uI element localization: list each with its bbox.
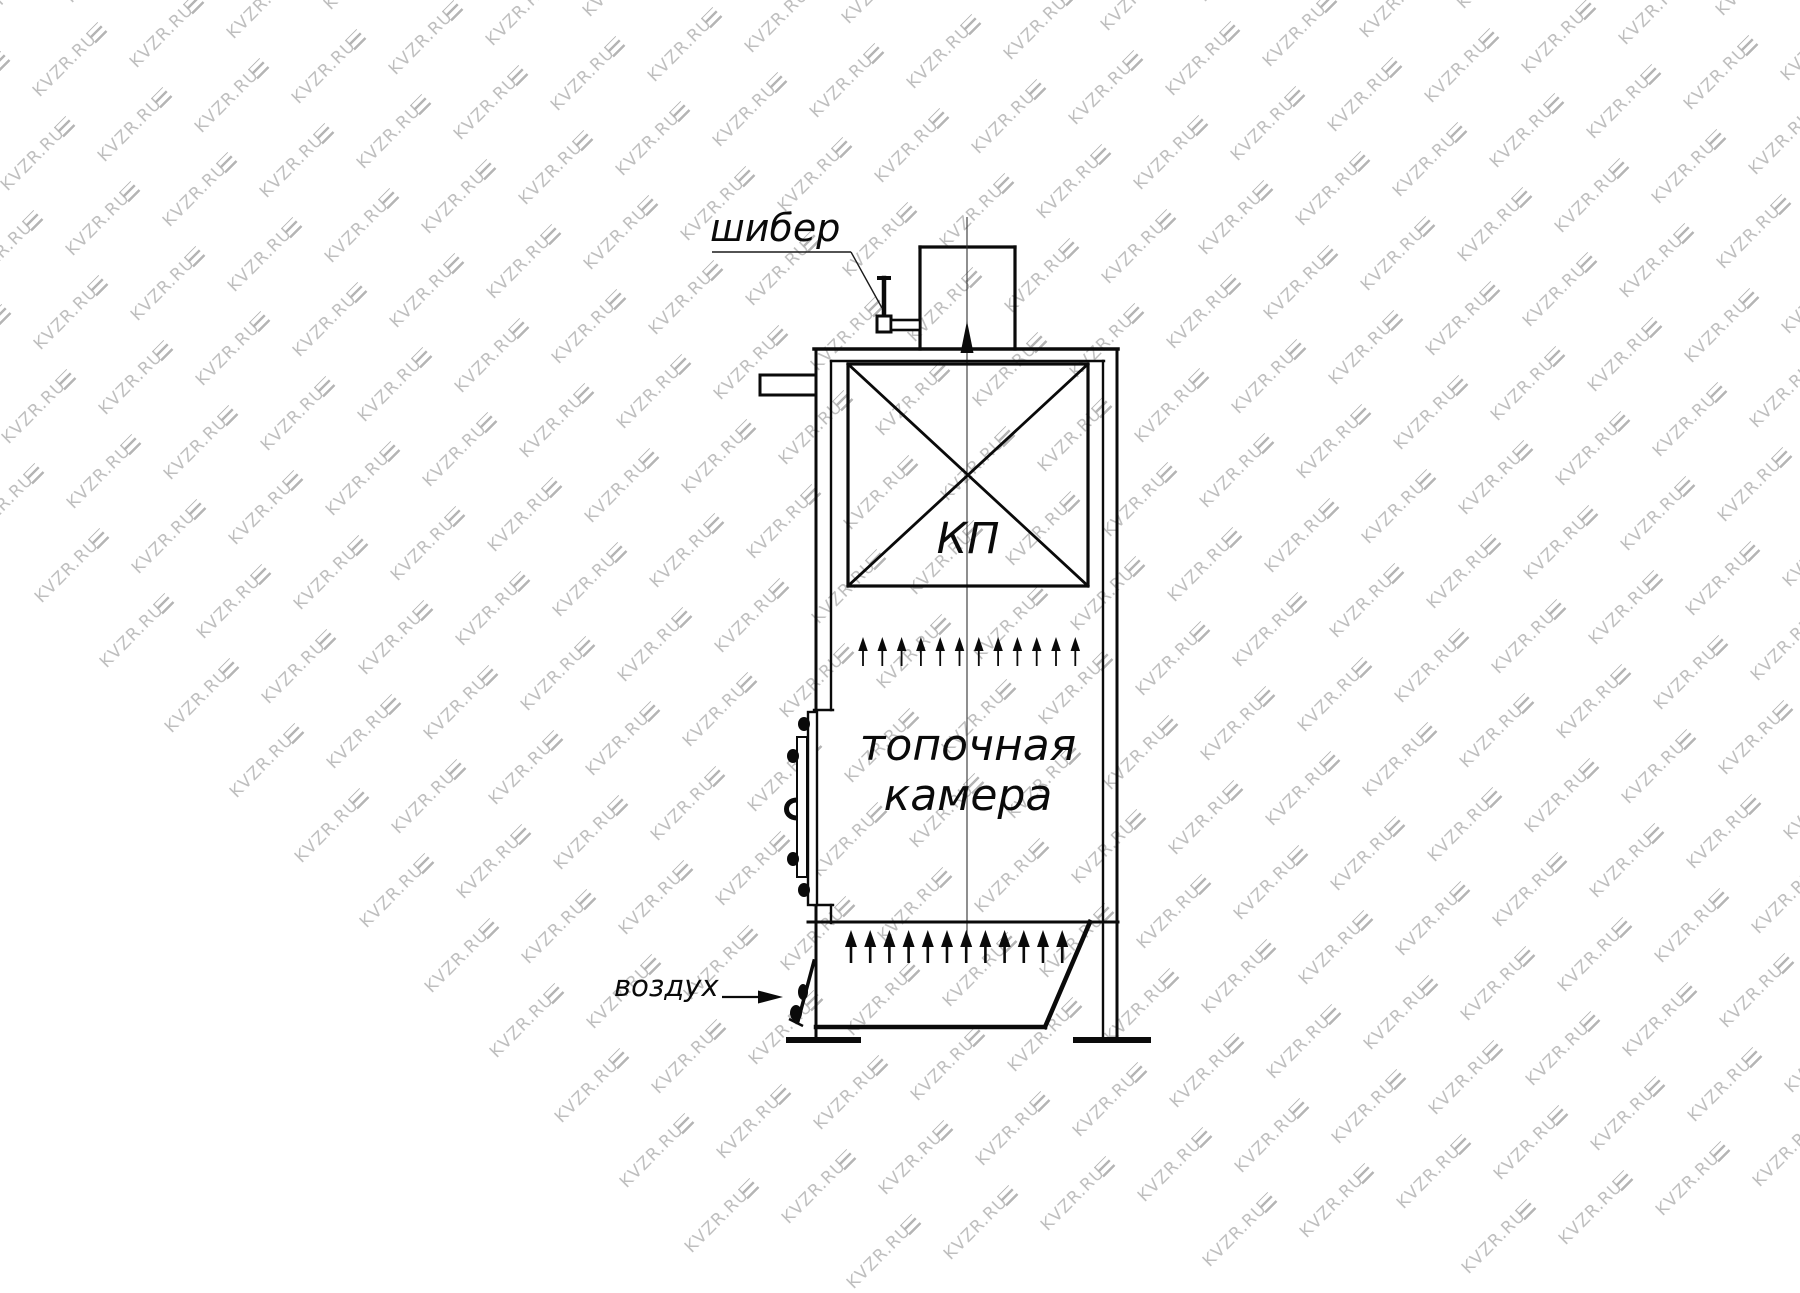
up-arrow-icon [916, 637, 926, 651]
boiler-shell [808, 349, 1118, 1039]
damper-leader-line [712, 252, 882, 308]
heat-exchanger-label: КП [868, 518, 1068, 561]
up-arrow-icon [922, 930, 934, 947]
air-door [789, 961, 814, 1026]
up-arrow-icon [955, 637, 965, 651]
up-arrow-icon [941, 930, 953, 947]
air-door-bolt-icon [790, 1005, 802, 1021]
up-arrow-icon [858, 637, 868, 651]
up-arrow-icon [1013, 637, 1023, 651]
flue-centerline [961, 217, 974, 935]
air-door-bolt-icon [798, 984, 808, 1000]
up-arrow-icon [993, 637, 1003, 651]
up-arrow-icon [935, 637, 945, 651]
up-arrow-icon [1032, 637, 1042, 651]
damper-valve [877, 278, 920, 332]
door-bolt-icon [798, 883, 810, 897]
watermark-text: KVZR.RU [843, 1221, 915, 1293]
flue-gas-flow-arrows [858, 637, 1080, 666]
up-arrow-icon [979, 930, 991, 947]
up-arrow-icon [1037, 930, 1049, 947]
door-bolt-icon [787, 852, 799, 866]
up-arrow-icon [1071, 637, 1081, 651]
watermark-text: KVZR.RU [1199, 1199, 1271, 1271]
up-arrow-icon [1051, 637, 1061, 651]
up-arrow-icon [1018, 930, 1030, 947]
combustion-chamber-label: топочная камера [768, 721, 1168, 821]
air-inlet-arrow-icon [722, 991, 783, 1004]
up-arrow-icon [903, 930, 915, 947]
up-arrow-icon [974, 637, 984, 651]
up-arrow-icon [845, 930, 857, 947]
up-arrow-icon [897, 637, 907, 651]
up-arrow-icon [883, 930, 895, 947]
up-arrow-icon [878, 637, 888, 651]
watermark-text: KVZR.RU [1458, 1206, 1530, 1278]
up-arrow-icon [999, 930, 1011, 947]
up-arrow-icon [960, 930, 972, 947]
boiler-section-diagram [0, 0, 1800, 1200]
up-arrow-icon [1056, 930, 1068, 947]
ash-hopper [816, 922, 1090, 1027]
air-label: воздух [614, 972, 719, 1001]
damper-label: шибер [710, 209, 840, 247]
grate-air-flow-arrows [845, 930, 1068, 963]
up-arrow-icon [864, 930, 876, 947]
outlet-pipe [760, 375, 816, 395]
watermark-text: KVZR.RU [940, 1192, 1012, 1264]
